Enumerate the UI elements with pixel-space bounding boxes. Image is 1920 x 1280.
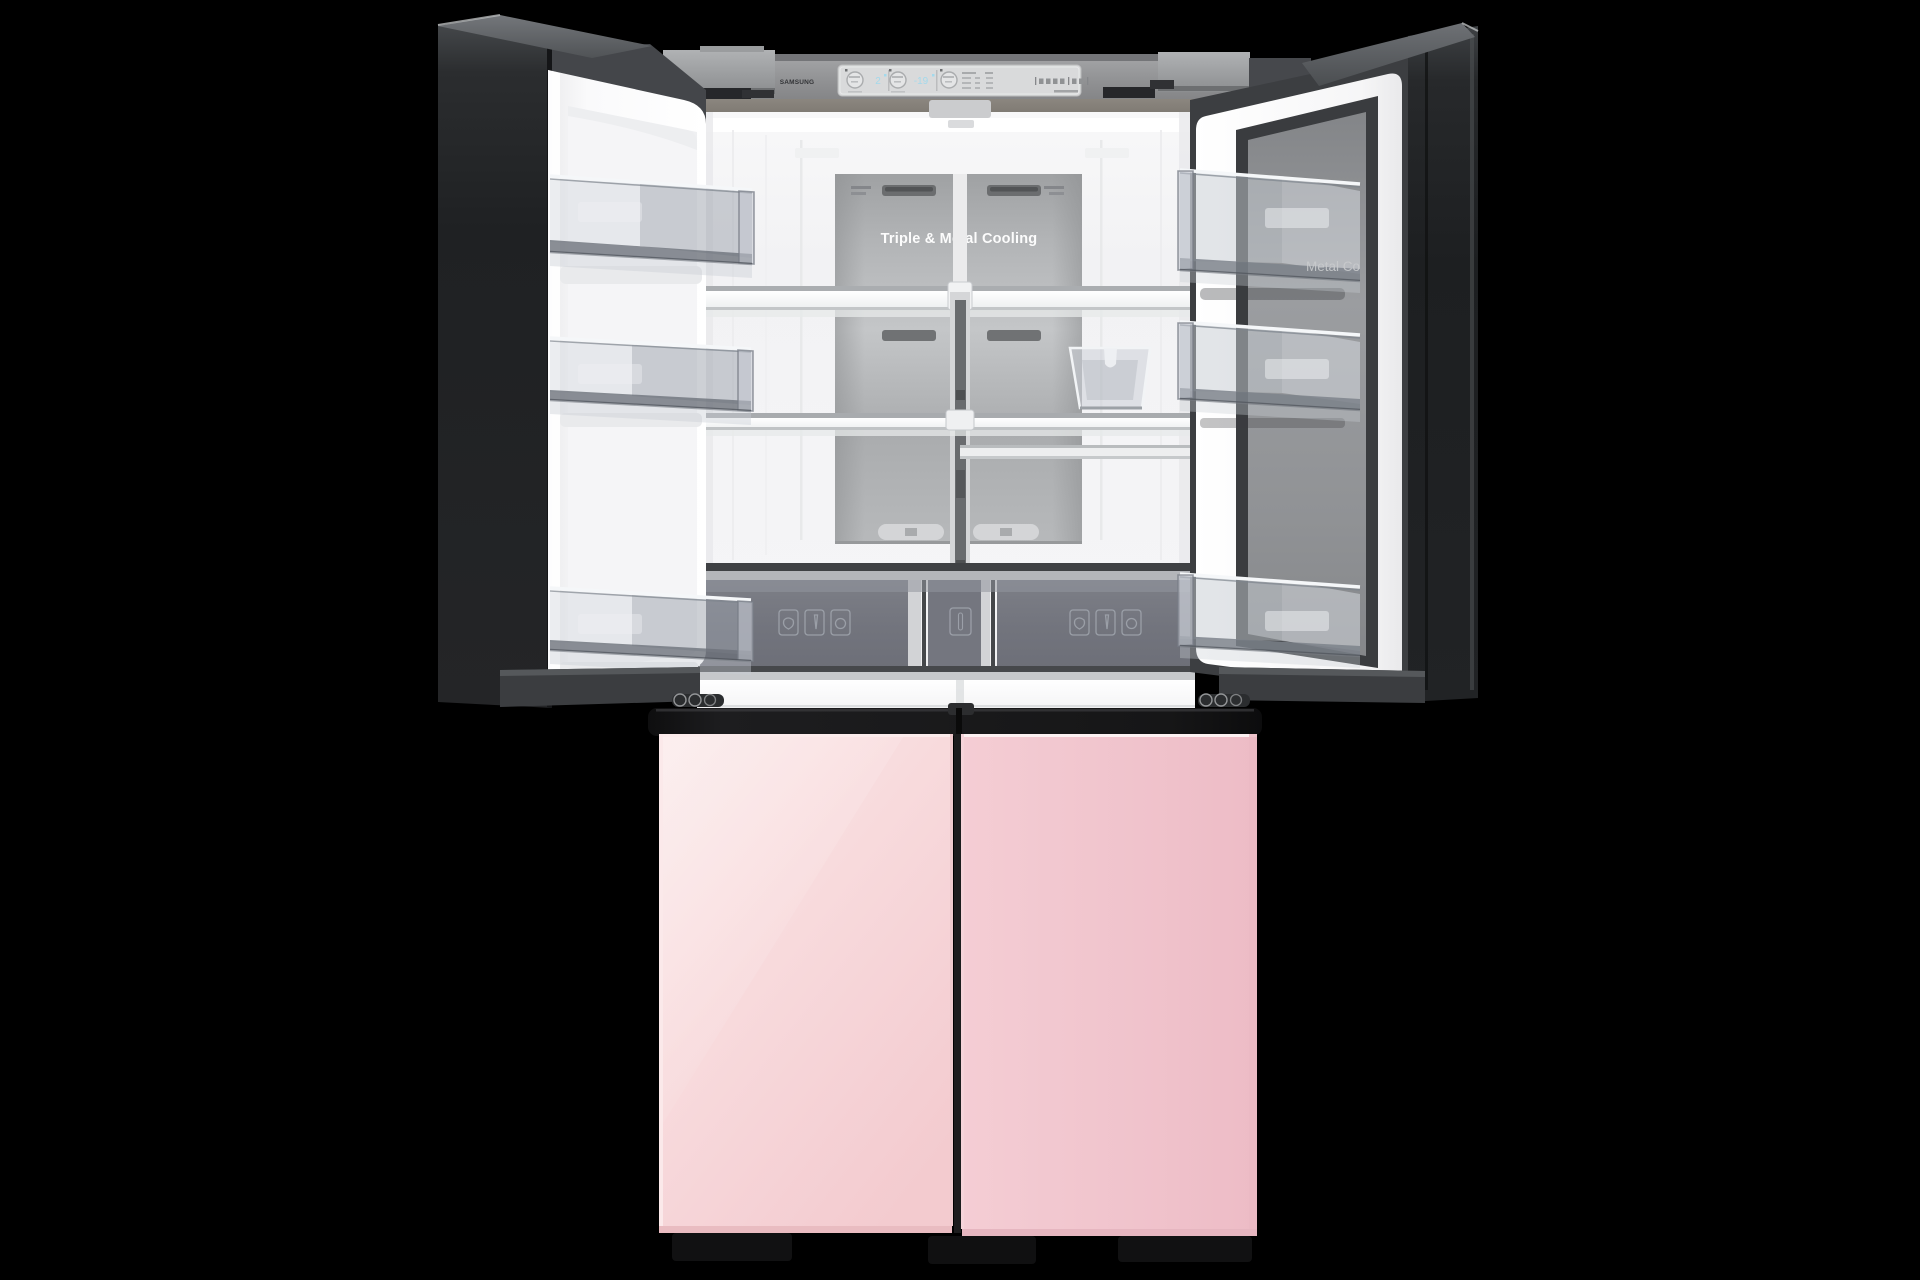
svg-text:2: 2 — [875, 76, 881, 87]
svg-text:Metal Co: Metal Co — [1306, 259, 1360, 274]
svg-text:SAMSUNG: SAMSUNG — [780, 79, 815, 86]
svg-text:-19: -19 — [914, 76, 929, 87]
